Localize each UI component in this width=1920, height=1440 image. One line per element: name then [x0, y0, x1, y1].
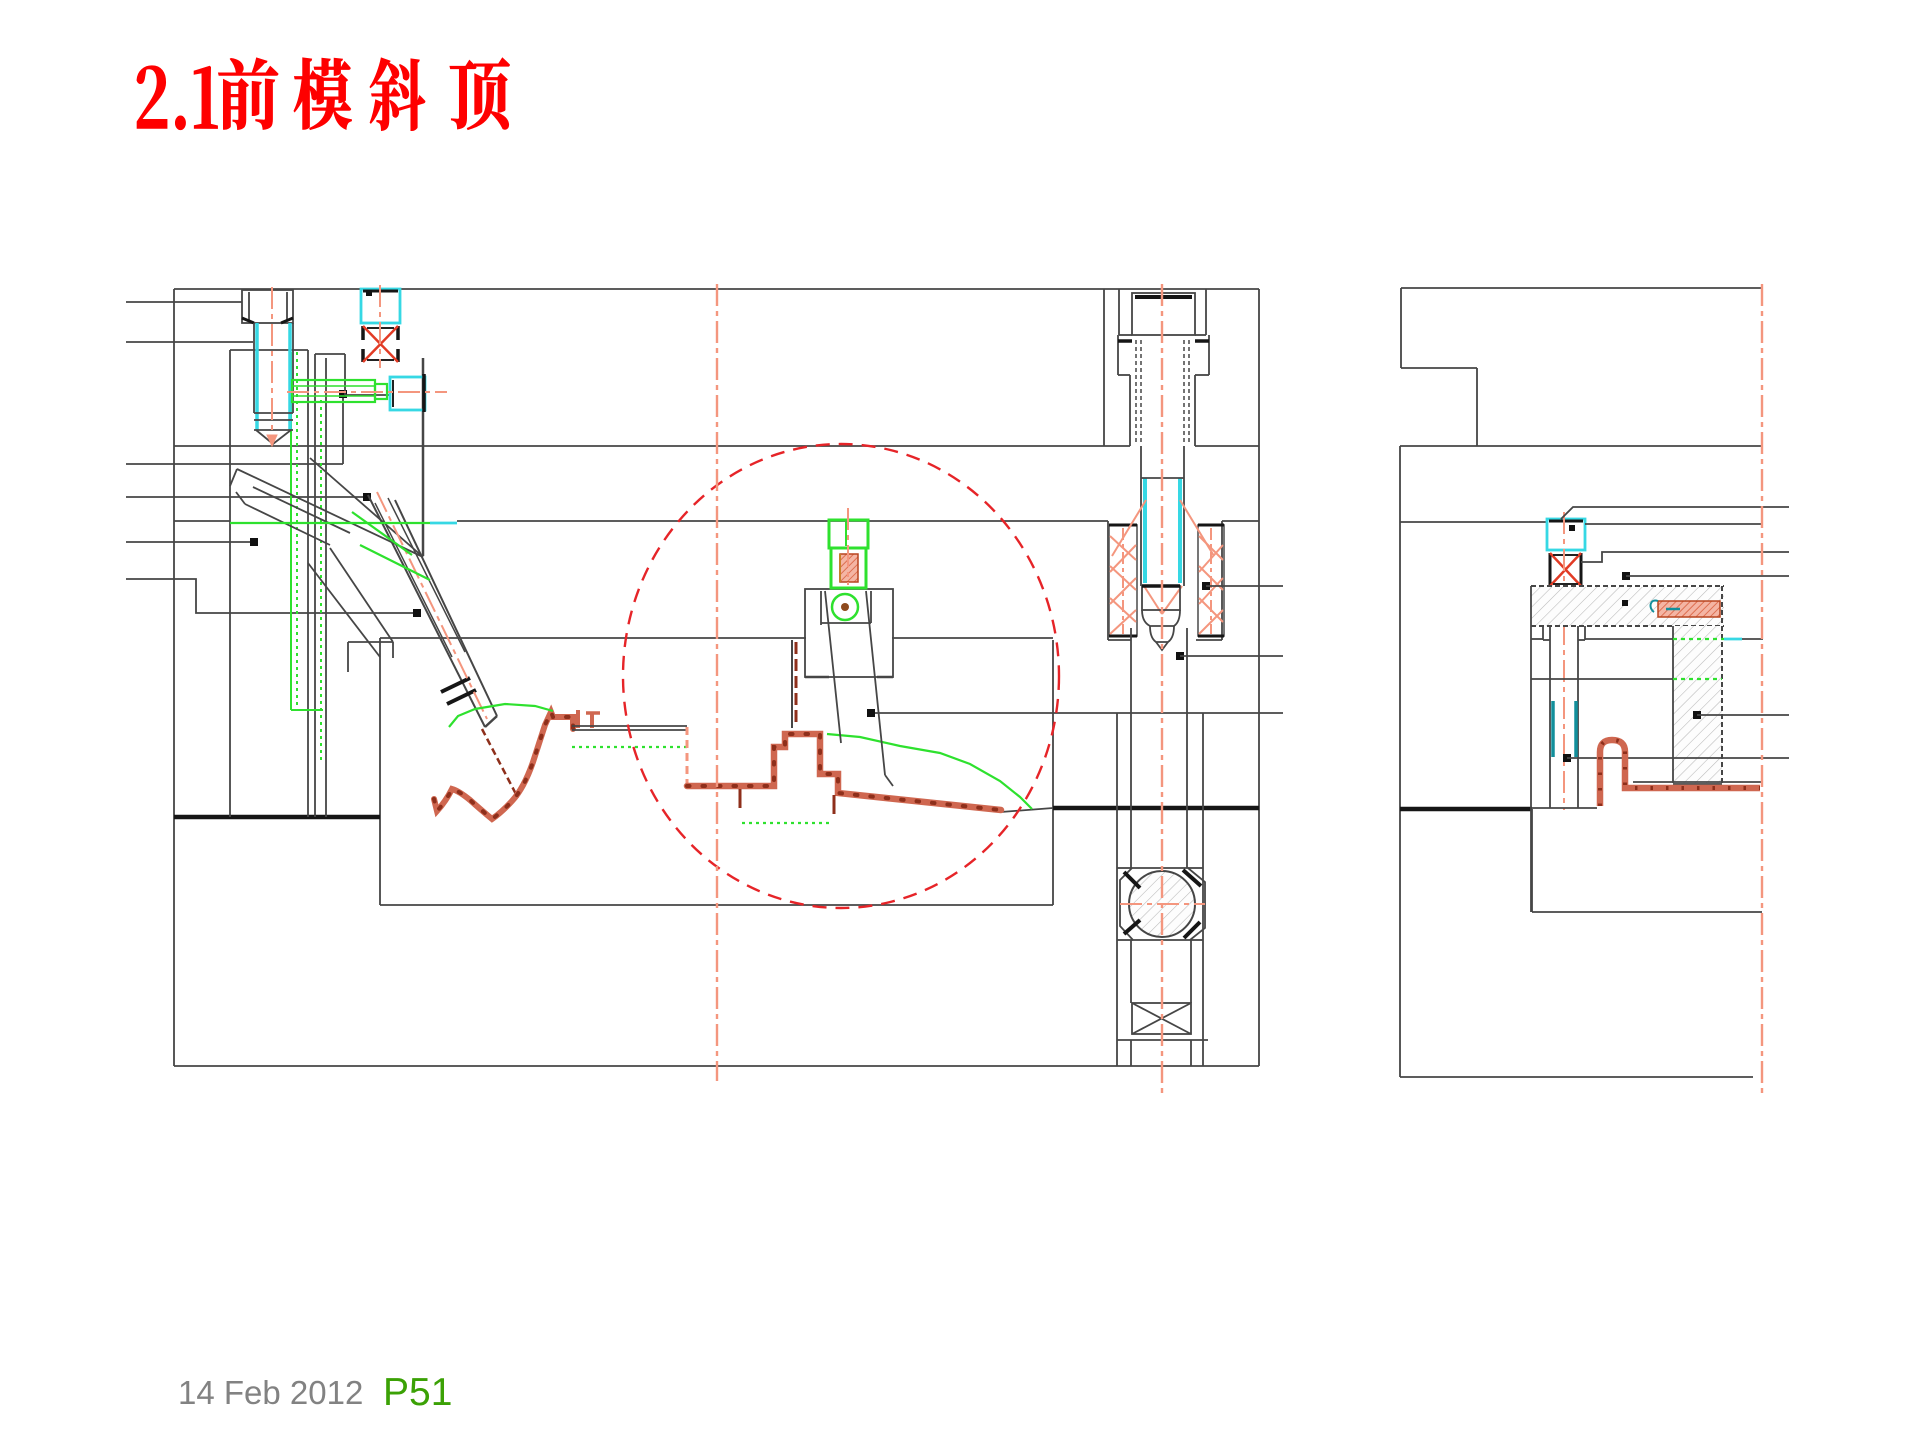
svg-text:14 Feb 2012: 14 Feb 2012: [178, 1374, 363, 1411]
svg-text:P51: P51: [383, 1371, 452, 1414]
